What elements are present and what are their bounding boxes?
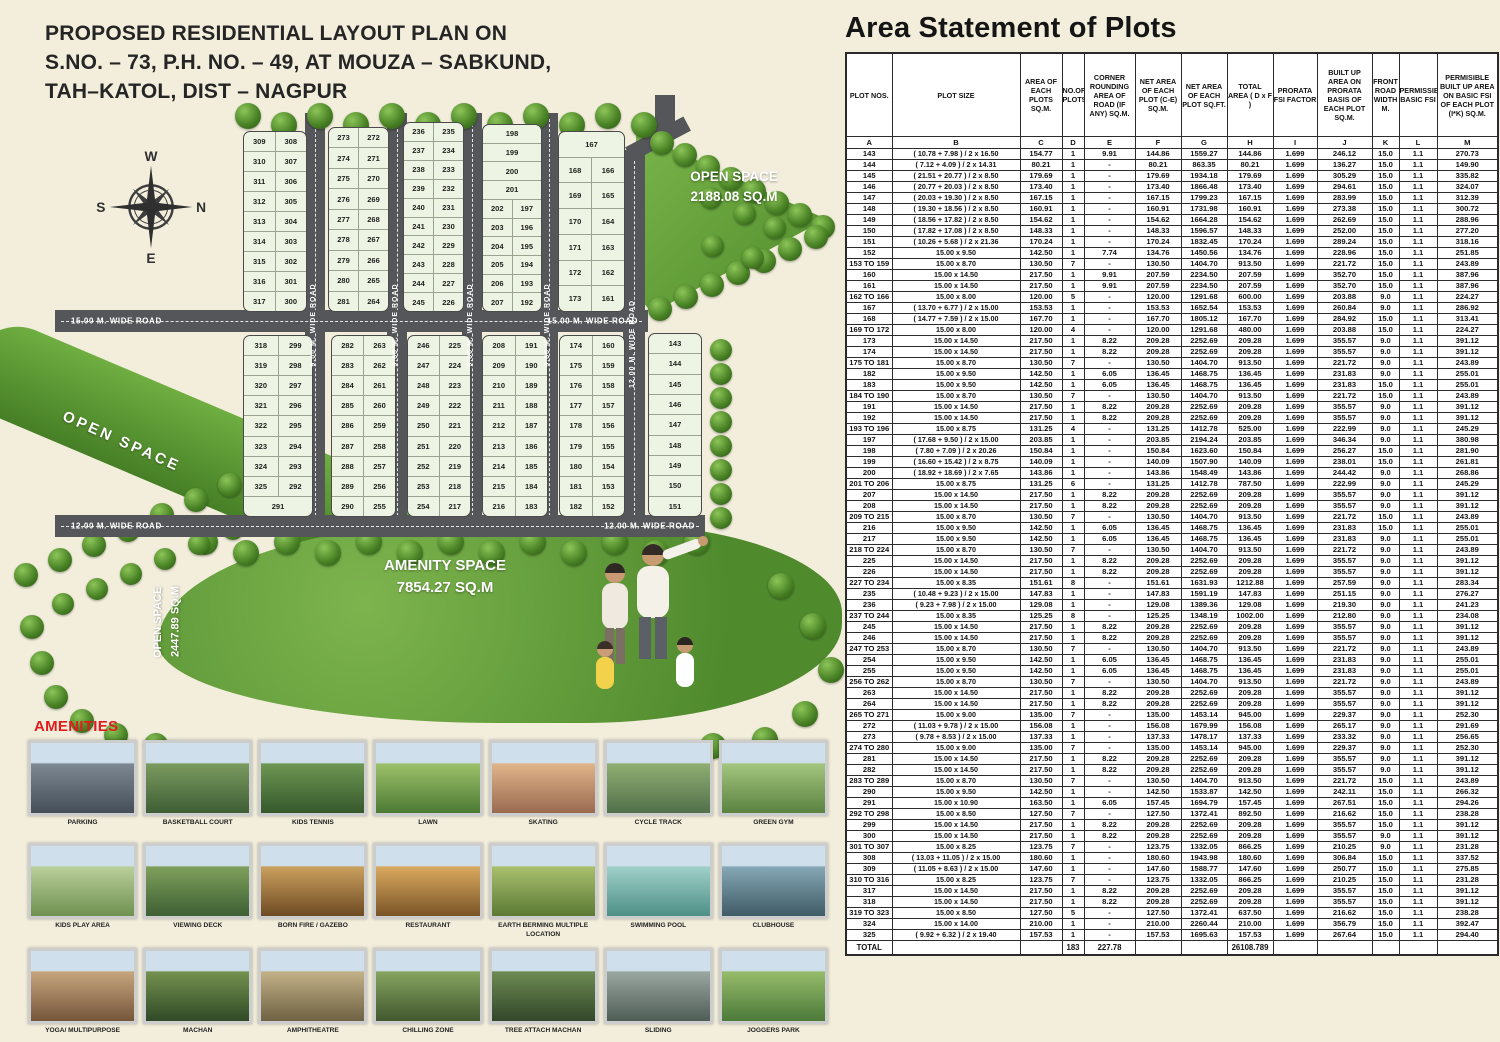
plot-cell: 181 (560, 477, 592, 496)
table-cell: 312.39 (1437, 193, 1498, 204)
plot-row: 236235 (404, 123, 463, 141)
table-cell: 1404.70 (1181, 644, 1227, 655)
amenity-tile: BORN FIRE / GAZEBO (258, 843, 367, 939)
plot-cell: 234 (433, 142, 463, 160)
table-cell: 1453.14 (1181, 710, 1227, 721)
table-cell: 229.37 (1317, 710, 1372, 721)
table-cell: 273.38 (1317, 204, 1372, 215)
table-cell: 130.50 (1135, 677, 1181, 688)
plot-cell: 307 (275, 152, 307, 171)
table-cell: 154.62 (1020, 215, 1062, 226)
plot-cell: 286 (332, 416, 363, 435)
plot-row: 241230 (404, 217, 463, 236)
table-cell: 1596.57 (1181, 226, 1227, 237)
table-cell: 120.00 (1135, 325, 1181, 336)
amenity-caption: AMPHITHEATRE (258, 1027, 367, 1042)
table-cell: 123.75 (1020, 842, 1062, 853)
table-cell: - (1084, 875, 1135, 886)
amenity-photo (604, 948, 713, 1024)
table-cell: 270.73 (1437, 149, 1498, 160)
table-cell: 6.05 (1084, 534, 1135, 545)
table-cell: B (892, 137, 1020, 149)
plot-cell: 172 (559, 261, 591, 286)
plot-row: 201 (483, 180, 541, 199)
table-cell: 217.50 (1020, 402, 1062, 413)
table-cell: 160.91 (1135, 204, 1181, 215)
table-cell: 149.90 (1437, 160, 1498, 171)
table-cell: 143.86 (1135, 468, 1181, 479)
table-cell: 9.0 (1372, 358, 1399, 369)
table-cell: 209.28 (1135, 754, 1181, 765)
plot-cell: 306 (275, 172, 307, 191)
plot-cell: 149 (649, 456, 701, 475)
table-cell: 243.89 (1437, 545, 1498, 556)
table-cell: 130.50 (1020, 677, 1062, 688)
amenity-photo (719, 740, 828, 816)
table-cell: 8.22 (1084, 413, 1135, 424)
table-cell: 15.0 (1372, 160, 1399, 171)
table-cell: 9.0 (1372, 545, 1399, 556)
tree-icon (218, 473, 242, 497)
table-cell: 140.09 (1135, 457, 1181, 468)
table-cell: 1.1 (1399, 314, 1437, 325)
plot-cell: 161 (591, 286, 624, 311)
plot-cell: 143 (649, 334, 701, 353)
table-cell: 243.89 (1437, 391, 1498, 402)
table-cell: 142.50 (1020, 523, 1062, 534)
table-cell: 15.00 x 8.50 (892, 908, 1020, 919)
col-header: PLOT NOS. (846, 53, 892, 137)
table-cell: 15.00 x 8.50 (892, 809, 1020, 820)
table-cell: - (1084, 743, 1135, 754)
plot-cell: 315 (244, 252, 275, 271)
plot-cell: 146 (649, 395, 701, 414)
plot-row: 282263 (332, 336, 395, 355)
table-cell: 1805.12 (1181, 314, 1227, 325)
table-cell: 289.24 (1317, 237, 1372, 248)
table-cell: 355.57 (1317, 336, 1372, 347)
table-cell: 1 (1062, 787, 1084, 798)
table-cell: 245 (846, 622, 892, 633)
tree-icon (710, 339, 732, 361)
plot-row: 317300 (244, 291, 306, 311)
table-cell: 1.699 (1273, 501, 1317, 512)
table-cell: 1 (1062, 523, 1084, 534)
col-header: CORNER ROUNDING AREA OF ROAD (IF ANY) SQ… (1084, 53, 1135, 137)
table-cell: 480.00 (1227, 325, 1273, 336)
table-cell: 221.72 (1317, 776, 1372, 787)
table-cell: 142.50 (1020, 666, 1062, 677)
table-cell: 1450.56 (1181, 248, 1227, 259)
plot-row: 289256 (332, 476, 395, 496)
plot-cell: 277 (329, 210, 358, 229)
table-cell: 15.00 x 8.25 (892, 875, 1020, 886)
table-cell: 238.28 (1437, 908, 1498, 919)
table-cell: 1 (1062, 732, 1084, 743)
table-cell: 9.0 (1372, 336, 1399, 347)
table-cell: ( 19.30 + 18.56 ) / 2 x 8.50 (892, 204, 1020, 215)
table-cell: 1 (1062, 897, 1084, 908)
plot-row: 310307 (244, 151, 306, 171)
table-cell: 15.0 (1372, 897, 1399, 908)
plot-cell: 280 (329, 271, 358, 290)
table-cell: 600.00 (1227, 292, 1273, 303)
plot-cell: 178 (560, 416, 592, 435)
table-cell: 15.00 x 9.50 (892, 248, 1020, 259)
table-cell: 216.62 (1317, 908, 1372, 919)
plot-row: 284261 (332, 375, 395, 395)
table-cell: 15.00 x 14.50 (892, 556, 1020, 567)
table-cell: 1.1 (1399, 930, 1437, 941)
table-cell: E (1084, 137, 1135, 149)
table-cell: 1 (1062, 336, 1084, 347)
tree-icon (778, 237, 802, 261)
table-cell: 391.12 (1437, 897, 1498, 908)
plot-cell: 298 (278, 356, 313, 375)
table-cell: 1.699 (1273, 281, 1317, 292)
plot-cell: 165 (591, 183, 624, 208)
table-cell: 160.91 (1227, 204, 1273, 215)
table-cell: 15.00 x 14.50 (892, 765, 1020, 776)
table-row: 209 TO 21515.00 x 8.70130.507-130.501404… (846, 512, 1498, 523)
amenity-photo (373, 948, 482, 1024)
amenity-caption: GREEN GYM (719, 819, 828, 834)
table-cell: 209.28 (1227, 567, 1273, 578)
table-cell: 252.30 (1437, 710, 1498, 721)
table-cell: 9.0 (1372, 666, 1399, 677)
table-cell: 154.62 (1227, 215, 1273, 226)
table-cell: 1.1 (1399, 237, 1437, 248)
plot-cell: 210 (483, 376, 515, 395)
table-cell: 221.72 (1317, 512, 1372, 523)
table-cell: 216 (846, 523, 892, 534)
table-cell: 15.00 x 8.75 (892, 479, 1020, 490)
plot-cell: 285 (332, 396, 363, 415)
table-cell: 199 (846, 457, 892, 468)
amenity-caption: CLUBHOUSE (719, 922, 828, 937)
table-cell: 1.699 (1273, 457, 1317, 468)
tree-icon (648, 297, 672, 321)
table-cell: - (1084, 204, 1135, 215)
table-cell: 8.22 (1084, 556, 1135, 567)
table-cell: 9.0 (1372, 347, 1399, 358)
table-cell: 525.00 (1227, 424, 1273, 435)
table-cell: 153 TO 159 (846, 259, 892, 270)
table-cell: 1943.98 (1181, 853, 1227, 864)
tree-icon (650, 131, 674, 155)
table-cell: 1 (1062, 413, 1084, 424)
table-cell: 123.75 (1135, 875, 1181, 886)
table-cell: 127.50 (1020, 809, 1062, 820)
table-row: 237 TO 24415.00 x 8.35125.258-125.251348… (846, 611, 1498, 622)
table-cell: 247 TO 253 (846, 644, 892, 655)
table-cell: 15.00 x 14.50 (892, 281, 1020, 292)
table-cell: 1.699 (1273, 831, 1317, 842)
table-row: 31815.00 x 14.50217.5018.22209.282252.69… (846, 897, 1498, 908)
amenity-tile: SLIDING (604, 948, 713, 1042)
col-header: PRORATA FSI FACTOR (1273, 53, 1317, 137)
table-cell: - (1084, 776, 1135, 787)
table-cell: 224.27 (1437, 325, 1498, 336)
table-cell: 173.40 (1227, 182, 1273, 193)
table-cell: 1453.14 (1181, 743, 1227, 754)
table-cell (1181, 941, 1227, 956)
table-cell: 913.50 (1227, 358, 1273, 369)
plot-row: 324293 (244, 456, 312, 476)
table-row: 26415.00 x 14.50217.5018.22209.282252.69… (846, 699, 1498, 710)
table-cell: 283.99 (1317, 193, 1372, 204)
table-cell: 209.28 (1135, 699, 1181, 710)
plot-cell: 267 (358, 230, 388, 249)
table-cell: 15.00 x 9.00 (892, 743, 1020, 754)
table-cell: 1.1 (1399, 655, 1437, 666)
plot-cell: 241 (404, 218, 433, 236)
table-cell: 2234.50 (1181, 270, 1227, 281)
table-cell: ( 14.77 + 7.59 ) / 2 x 15.00 (892, 314, 1020, 325)
plot-row: 211188 (483, 395, 547, 415)
table-cell: 209.28 (1227, 347, 1273, 358)
amenity-caption: VIEWING DECK (143, 922, 252, 937)
table-cell: 1.699 (1273, 534, 1317, 545)
table-cell: 1.699 (1273, 754, 1317, 765)
table-cell: 787.50 (1227, 479, 1273, 490)
table-cell: 9.0 (1372, 534, 1399, 545)
table-cell: 209.28 (1135, 490, 1181, 501)
table-cell: 15.00 x 14.50 (892, 754, 1020, 765)
table-row: 31715.00 x 14.50217.5018.22209.282252.69… (846, 886, 1498, 897)
table-cell: 1.1 (1399, 798, 1437, 809)
amenity-photo (604, 740, 713, 816)
amenity-caption: CYCLE TRACK (604, 819, 713, 834)
amenity-photo (719, 843, 828, 919)
table-cell: 136.45 (1135, 369, 1181, 380)
table-cell: 26108.789 (1227, 941, 1273, 956)
table-cell: 1 (1062, 226, 1084, 237)
table-cell: 222.99 (1317, 479, 1372, 490)
plot-cell: 226 (433, 293, 463, 311)
table-cell: 1 (1062, 567, 1084, 578)
table-cell: 262.69 (1317, 215, 1372, 226)
table-cell: 243.89 (1437, 776, 1498, 787)
table-cell: 142.50 (1135, 787, 1181, 798)
plot-row: 249222 (408, 395, 470, 415)
table-cell: 265 TO 271 (846, 710, 892, 721)
table-cell: 1.699 (1273, 435, 1317, 446)
table-cell: - (1084, 908, 1135, 919)
table-cell: 250.77 (1317, 864, 1372, 875)
table-cell: 1.699 (1273, 380, 1317, 391)
plot-cell: 322 (244, 416, 278, 435)
table-cell: 9.0 (1372, 578, 1399, 589)
plot-row: 316301 (244, 271, 306, 291)
table-cell: ( 7.80 + 7.09 ) / 2 x 20.26 (892, 446, 1020, 457)
table-cell: 1 (1062, 622, 1084, 633)
table-cell: 1 (1062, 919, 1084, 930)
table-cell: 15.00 x 14.50 (892, 270, 1020, 281)
table-cell: 9.0 (1372, 413, 1399, 424)
road-label: 9.00 M. WIDE ROAD (467, 283, 474, 366)
table-cell: 637.50 (1227, 908, 1273, 919)
table-cell: 191 (846, 402, 892, 413)
plot-row: 149 (649, 455, 701, 475)
table-cell: 217.50 (1020, 622, 1062, 633)
table-row: 256 TO 26215.00 x 8.70130.507-130.501404… (846, 677, 1498, 688)
plot-row: 278267 (329, 229, 388, 249)
plot-row: 214185 (483, 456, 547, 476)
amenity-tile: SWIMMING POOL (604, 843, 713, 939)
table-cell: 163.50 (1020, 798, 1062, 809)
plot-cell: 239 (404, 180, 433, 198)
table-cell: 209.28 (1227, 501, 1273, 512)
table-cell: 130.50 (1135, 391, 1181, 402)
plot-cell: 320 (244, 376, 278, 395)
table-cell: 15.00 x 14.50 (892, 820, 1020, 831)
table-row: 292 TO 29815.00 x 8.50127.507-127.501372… (846, 809, 1498, 820)
table-cell: 127.50 (1135, 908, 1181, 919)
table-cell: 355.57 (1317, 699, 1372, 710)
table-cell: - (1084, 721, 1135, 732)
plot-cell: 243 (404, 255, 433, 273)
table-cell: 226 (846, 567, 892, 578)
table-cell: 356.79 (1317, 919, 1372, 930)
table-cell: 174 (846, 347, 892, 358)
table-cell: 243.89 (1437, 644, 1498, 655)
table-cell: 913.50 (1227, 259, 1273, 270)
plot-row: 252219 (408, 456, 470, 476)
plot-row: 182152 (560, 496, 624, 516)
plot-cell: 160 (592, 336, 625, 355)
table-cell: 217.50 (1020, 897, 1062, 908)
table-cell: 306.84 (1317, 853, 1372, 864)
table-cell: 1348.19 (1181, 611, 1227, 622)
table-cell: 136.45 (1227, 655, 1273, 666)
table-cell: 1.699 (1273, 303, 1317, 314)
table-cell: 15.00 x 14.50 (892, 567, 1020, 578)
table-cell: 147 (846, 193, 892, 204)
table-cell: 1.1 (1399, 567, 1437, 578)
plot-cell: 150 (649, 476, 701, 495)
table-cell (1399, 941, 1437, 956)
amenity-space-area-value: 7854.27 SQ.M (330, 577, 560, 599)
table-cell: 1.699 (1273, 292, 1317, 303)
table-cell: 1.699 (1273, 798, 1317, 809)
col-header: NET AREA OF EACH PLOT SQ.FT. (1181, 53, 1227, 137)
table-cell: 913.50 (1227, 391, 1273, 402)
table-cell: 1.1 (1399, 721, 1437, 732)
plot-cell: 186 (515, 437, 548, 456)
tree-icon (86, 578, 108, 600)
plot-cell: 221 (439, 416, 471, 435)
plot-row: 313304 (244, 211, 306, 231)
table-cell: 1.1 (1399, 468, 1437, 479)
table-cell: 15.0 (1372, 314, 1399, 325)
plot-cell: 148 (649, 436, 701, 455)
table-row: 149( 18.56 + 17.82 ) / 2 x 8.50154.621-1… (846, 215, 1498, 226)
table-cell: 235 (846, 589, 892, 600)
table-cell: 1 (1062, 237, 1084, 248)
table-cell: 1548.49 (1181, 468, 1227, 479)
table-cell: 1 (1062, 501, 1084, 512)
table-cell: 1.1 (1399, 897, 1437, 908)
table-cell: 170.24 (1020, 237, 1062, 248)
plot-cell: 264 (358, 292, 388, 311)
plot-row: 148 (649, 435, 701, 455)
table-cell: 162 TO 166 (846, 292, 892, 303)
table-cell: 217.50 (1020, 281, 1062, 292)
table-cell: - (1084, 424, 1135, 435)
table-cell: 913.50 (1227, 512, 1273, 523)
table-cell: 192 (846, 413, 892, 424)
table-cell: 15.0 (1372, 787, 1399, 798)
table-cell: 1.1 (1399, 292, 1437, 303)
amenity-photo (489, 740, 598, 816)
table-cell: 15.0 (1372, 930, 1399, 941)
table-row: 265 TO 27115.00 x 9.00135.007-135.001453… (846, 710, 1498, 721)
table-cell: 254 (846, 655, 892, 666)
plot-cell: 257 (363, 457, 395, 476)
table-cell: 1.1 (1399, 160, 1437, 171)
table-cell: 1832.45 (1181, 237, 1227, 248)
table-cell: D (1062, 137, 1084, 149)
table-cell: 305.29 (1317, 171, 1372, 182)
table-cell: 1.1 (1399, 622, 1437, 633)
plot-cell: 254 (408, 497, 439, 516)
table-cell: ( 9.78 + 8.53 ) / 2 x 15.00 (892, 732, 1020, 743)
tree-icon (710, 483, 732, 505)
plot-row: 145 (649, 374, 701, 394)
table-cell: 1.1 (1399, 556, 1437, 567)
table-row: 308( 13.03 + 11.05 ) / 2 x 15.00180.601-… (846, 853, 1498, 864)
table-cell: 913.50 (1227, 545, 1273, 556)
table-cell: 1.1 (1399, 171, 1437, 182)
table-row: 167( 13.70 + 6.77 ) / 2 x 15.00153.531-1… (846, 303, 1498, 314)
table-cell: 130.50 (1135, 545, 1181, 556)
table-cell: 2252.69 (1181, 402, 1227, 413)
table-cell: 148.33 (1020, 226, 1062, 237)
plot-block: 1741601751591761581771571781561791551801… (559, 335, 625, 517)
plot-row: 243228 (404, 254, 463, 273)
plot-row: 202197 (483, 199, 541, 218)
plot-cell: 304 (275, 212, 307, 231)
plot-row: 200 (483, 161, 541, 180)
plot-cell: 324 (244, 457, 278, 476)
table-cell: 167.15 (1227, 193, 1273, 204)
table-cell: 15.0 (1372, 776, 1399, 787)
table-cell: - (1084, 611, 1135, 622)
table-cell: 9.0 (1372, 424, 1399, 435)
table-cell: 246.12 (1317, 149, 1372, 160)
table-cell: 255 (846, 666, 892, 677)
table-cell: 151 (846, 237, 892, 248)
table-cell: 180.60 (1227, 853, 1273, 864)
table-row: 16115.00 x 14.50217.5019.91207.592234.50… (846, 281, 1498, 292)
table-cell: 391.12 (1437, 501, 1498, 512)
plot-row: 146 (649, 394, 701, 414)
table-cell (1273, 941, 1317, 956)
table-cell: 234.08 (1437, 611, 1498, 622)
table-cell: 217.50 (1020, 831, 1062, 842)
tree-icon (184, 488, 208, 512)
table-cell: 1.699 (1273, 259, 1317, 270)
table-cell: 355.57 (1317, 897, 1372, 908)
table-cell: 147.60 (1227, 864, 1273, 875)
table-cell: 1212.88 (1227, 578, 1273, 589)
table-row: 147( 20.03 + 19.30 ) / 2 x 8.50167.151-1… (846, 193, 1498, 204)
amenity-caption: YOGA/ MULTIPURPOSE (28, 1027, 137, 1042)
table-row: 218 TO 22415.00 x 8.70130.507-130.501404… (846, 545, 1498, 556)
table-cell: 136.27 (1317, 160, 1372, 171)
tree-icon (307, 103, 333, 129)
